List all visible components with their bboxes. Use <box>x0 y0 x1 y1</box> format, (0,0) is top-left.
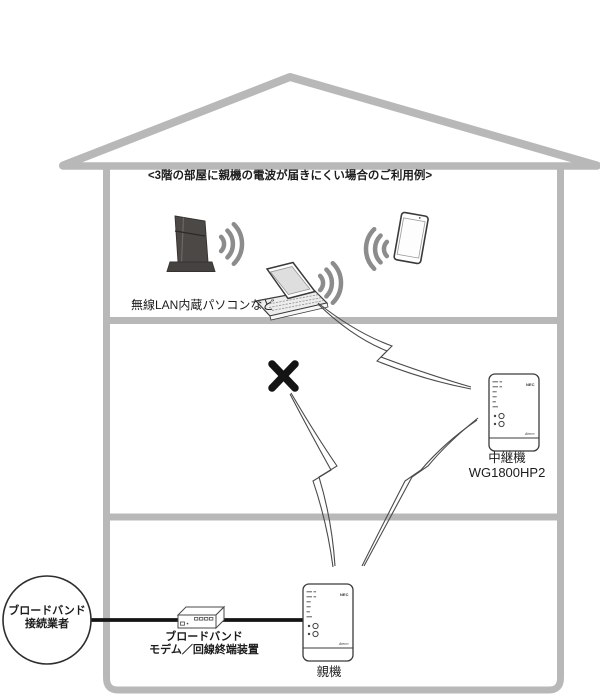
provider-label-line2: 接続業者 <box>2 618 92 631</box>
modem-label-line1: ブロードバンド <box>140 631 268 644</box>
provider-label-line1: ブロードバンド <box>2 605 92 618</box>
wireless-link-bolt-laptop-repeater <box>318 303 471 389</box>
wireless-link-bolt-repeater-parent <box>362 418 478 566</box>
modem-icon <box>178 607 224 628</box>
repeater-model: WG1800HP2 <box>445 466 569 480</box>
parent-device: NEC Aterm <box>303 584 353 661</box>
modem-label: ブロードバンド モデム／回線終端装置 <box>140 631 268 656</box>
repeater-name: 中継機 <box>445 452 569 466</box>
brand-logo: NEC <box>526 382 535 387</box>
brand-logo: NEC <box>340 592 349 597</box>
modem-label-line2: モデム／回線終端装置 <box>140 644 268 657</box>
wifi-waves-icon-phone <box>366 229 387 269</box>
diagram-title: <3階の部屋に親機の電波が届きにくい場合のご利用例> <box>100 170 480 183</box>
parent-device-label: 親機 <box>289 665 369 679</box>
repeater-device: NEC Aterm <box>489 374 539 451</box>
provider-circle-label: ブロードバンド 接続業者 <box>2 605 92 631</box>
diagram-canvas: NEC Aterm NEC <box>0 0 600 696</box>
wifi-waves-icon-laptop <box>320 263 341 303</box>
wireless-pc-label: 無線LAN内蔵パソコンなど <box>131 299 274 312</box>
wireless-link-bolt-blocked-parent <box>290 393 337 567</box>
smartphone-icon <box>394 212 429 264</box>
blocked-cross-icon <box>272 364 295 388</box>
series-logo: Aterm <box>338 642 349 646</box>
repeater-label: 中継機 WG1800HP2 <box>445 452 569 479</box>
house-network-diagram: NEC Aterm NEC <box>0 0 600 696</box>
game-console-icon <box>167 216 215 272</box>
wifi-waves-icon-console <box>221 224 242 264</box>
series-logo: Aterm <box>524 432 535 436</box>
roof-icon <box>63 77 597 166</box>
